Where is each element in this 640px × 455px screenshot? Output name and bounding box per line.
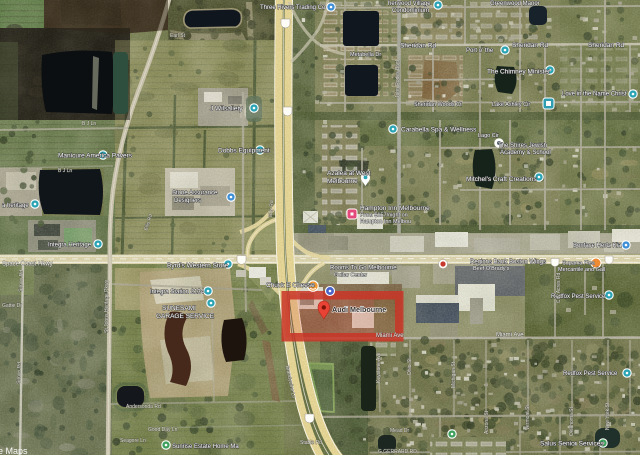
svg-text:City Acres Rd: City Acres Rd [556,272,562,303]
svg-text:Dobbs Equipment: Dobbs Equipment [218,148,270,155]
svg-text:herwood Village: herwood Village [388,1,431,7]
svg-text:Sheridan Woods Ct: Sheridan Woods Ct [414,102,462,108]
svg-text:Arizona St: Arizona St [484,410,490,434]
svg-text:Gattie Dr: Gattie Dr [2,303,22,309]
svg-text:Simon Rd: Simon Rd [18,270,25,292]
svg-text:St Johns Heritage Pkwy: St Johns Heritage Pkwy [104,279,110,333]
svg-text:Sheridan Rd: Sheridan Rd [588,42,625,49]
svg-text:Simon Rd: Simon Rd [16,362,23,384]
svg-text:Vermont St: Vermont St [525,405,531,430]
svg-text:Three Rivers Trading Co: Three Rivers Trading Co [260,5,326,11]
svg-text:Melbourne: Melbourne [327,178,358,185]
svg-text:Stone Assurance: Stone Assurance [172,191,218,197]
svg-text:Lago Cir: Lago Cir [478,133,499,139]
svg-text:Azalea at West: Azalea at West [327,170,371,177]
svg-text:Chuck E Cheese: Chuck E Cheese [266,282,315,289]
svg-text:Andersonda Rd: Andersonda Rd [126,404,161,410]
svg-text:J Wilsaliety: J Wilsaliety [210,106,243,113]
svg-text:Lake Ashley Cir: Lake Ashley Cir [492,102,530,108]
svg-text:Sheridan Rd: Sheridan Rd [512,42,549,49]
svg-text:B J Ln: B J Ln [82,121,96,127]
svg-text:Google Maps: Google Maps [0,446,28,455]
svg-text:Guitar Center: Guitar Center [334,273,367,279]
svg-text:G GERRARD RD: G GERRARD RD [378,449,417,455]
svg-text:Condominium: Condominium [392,8,429,14]
svg-text:Rooms To Go Melbourne: Rooms To Go Melbourne [330,266,397,272]
svg-text:Michigan St: Michigan St [451,361,457,388]
svg-text:a heritage: a heritage [2,203,29,209]
svg-text:Ohio St: Ohio St [407,358,413,375]
svg-text:Hampton Inn Melbou: Hampton Inn Melbou [360,219,411,225]
svg-text:GARAGE SERVICE: GARAGE SERVICE [156,313,215,320]
svg-text:Greenwood Manor: Greenwood Manor [490,1,540,7]
svg-text:Designers: Designers [174,198,201,204]
svg-text:From $157/night on: From $157/night on [360,213,408,219]
svg-text:Regions Bank Boston Wings: Regions Bank Boston Wings [470,260,546,266]
svg-text:Academy & School: Academy & School [500,150,551,156]
svg-text:Seagore Ln: Seagore Ln [120,438,146,444]
svg-text:Love in the Name Christ: Love in the Name Christ [562,92,627,98]
svg-text:New York St: New York St [605,402,611,430]
svg-text:Carabella Spa & Wellness: Carabella Spa & Wellness [401,127,477,134]
svg-text:Beef O'Brady's: Beef O'Brady's [473,266,510,272]
svg-text:Bonface Hertz Kia: Bonface Hertz Kia [573,243,622,249]
svg-text:SUNESAMI: SUNESAMI [162,305,196,312]
svg-text:Sheridan Rd: Sheridan Rd [400,43,437,50]
svg-text:Manicure America Pavers: Manicure America Pavers [58,153,133,160]
svg-text:John Rodes Blvd: John Rodes Blvd [395,60,401,98]
svg-text:Keystone Ave: Keystone Ave [376,352,382,383]
svg-text:Byrd's Western Store: Byrd's Western Store [167,263,228,270]
svg-text:Integra Station 2134: Integra Station 2134 [150,290,205,296]
svg-text:Integra Heritage: Integra Heritage [48,243,92,249]
svg-text:The Chimney Minister: The Chimney Minister [487,69,551,76]
svg-text:Hampton Inn Melbourne: Hampton Inn Melbourne [360,205,430,212]
svg-text:Mitchel's Craft Creations: Mitchel's Craft Creations [466,176,537,183]
svg-text:Mead Dr: Mead Dr [390,428,410,434]
svg-text:Good Day Ln: Good Day Ln [148,427,178,433]
svg-text:Miami Ave: Miami Ave [376,333,404,339]
svg-text:Space Coast Hkwy: Space Coast Hkwy [2,262,53,268]
svg-text:Metabella Dr: Metabella Dr [350,52,381,58]
svg-text:Supama Flea: Supama Flea [562,261,596,267]
svg-text:Redfox Pest Service: Redfox Pest Service [563,371,618,377]
svg-text:Stable Rd: Stable Rd [300,440,322,446]
svg-text:Oklahoma St: Oklahoma St [569,406,575,436]
svg-text:Earl St: Earl St [170,33,186,39]
svg-text:Miami Ave: Miami Ave [496,333,524,339]
svg-text:Mercantile and Gall: Mercantile and Gall [558,267,605,273]
svg-text:Audi Melbourne: Audi Melbourne [332,305,386,314]
svg-text:The Shires Jewish: The Shires Jewish [498,143,547,149]
svg-text:Port o' the: Port o' the [466,48,494,54]
svg-text:B J Ln: B J Ln [58,168,72,174]
svg-text:Salus Senior Services: Salus Senior Services [540,441,604,448]
svg-text:Sunrise Estate Home Ma: Sunrise Estate Home Ma [172,444,239,450]
